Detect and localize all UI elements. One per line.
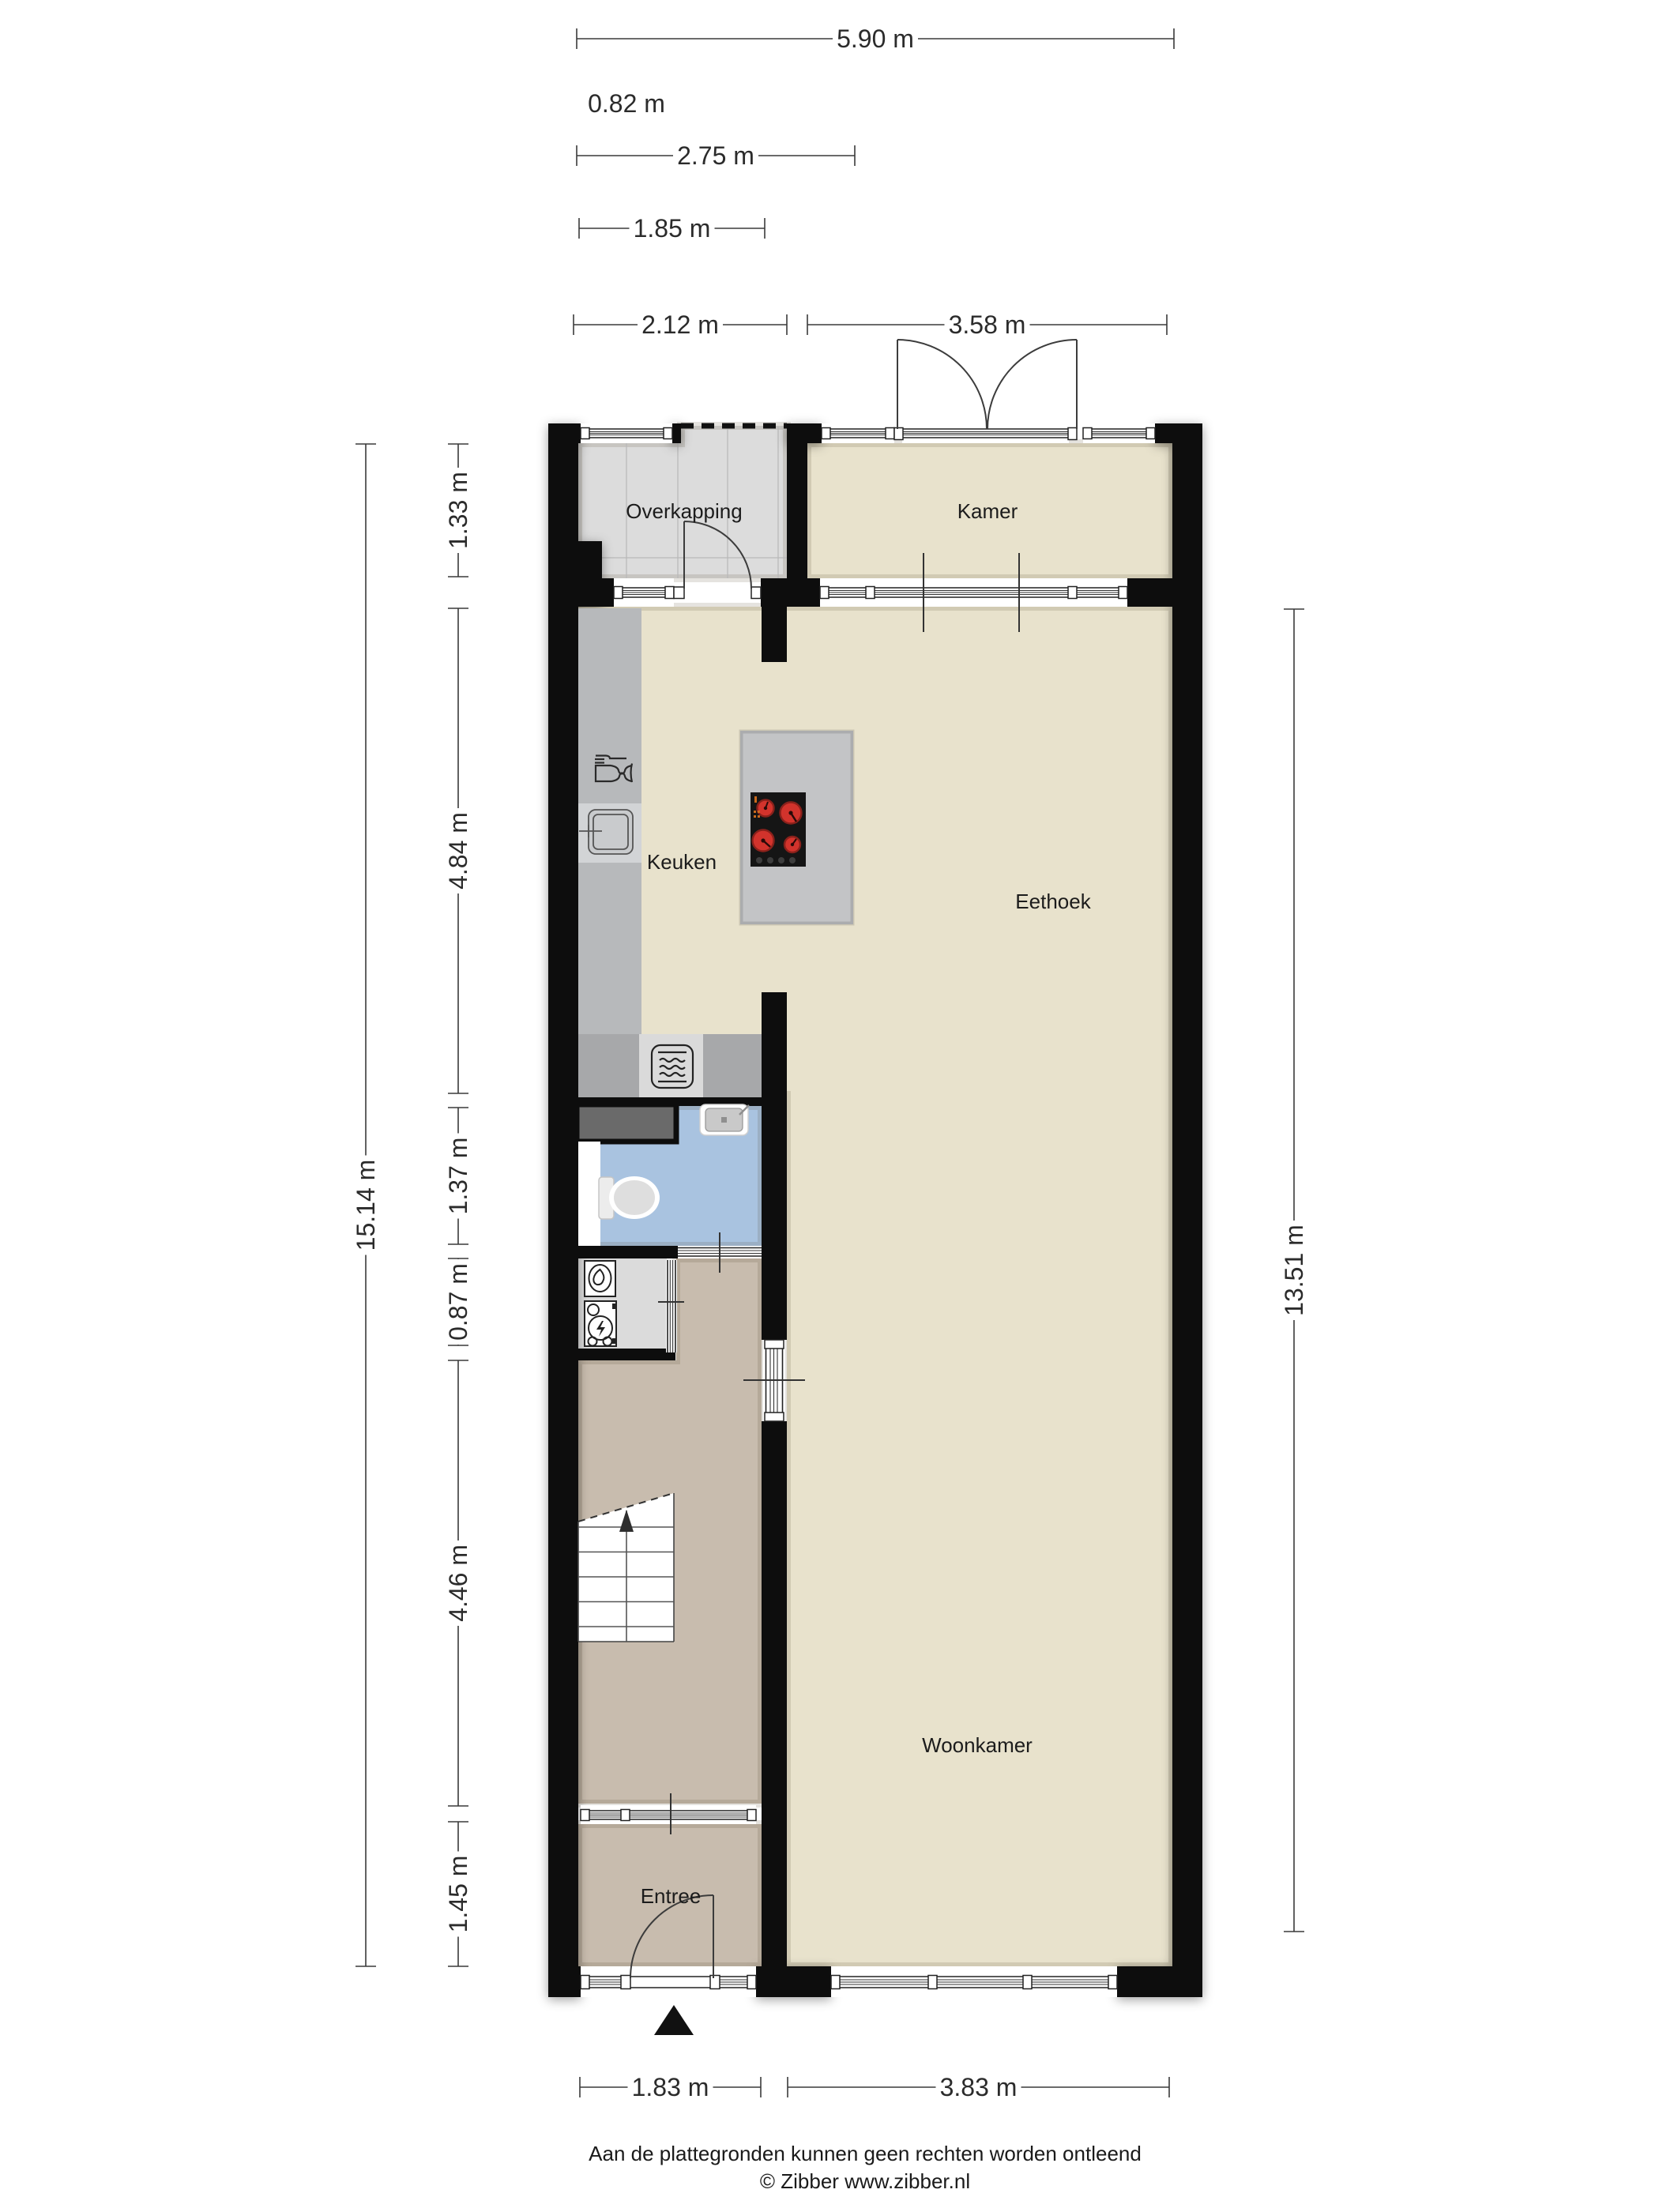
svg-text:1.37 m: 1.37 m: [444, 1138, 472, 1215]
svg-text:1.33 m: 1.33 m: [444, 472, 472, 549]
svg-text:3.58 m: 3.58 m: [949, 310, 1026, 339]
svg-text:Kamer: Kamer: [957, 499, 1018, 523]
svg-text:Eethoek: Eethoek: [1015, 890, 1091, 913]
svg-text:Aan de plattegronden kunnen ge: Aan de plattegronden kunnen geen rechten…: [589, 2142, 1142, 2165]
svg-text:1.85 m: 1.85 m: [634, 214, 711, 243]
svg-text:2.75 m: 2.75 m: [677, 141, 754, 170]
svg-text:5.90 m: 5.90 m: [837, 24, 914, 53]
svg-text:13.51 m: 13.51 m: [1280, 1224, 1308, 1316]
svg-text:1.45 m: 1.45 m: [444, 1856, 472, 1933]
svg-text:4.84 m: 4.84 m: [444, 812, 472, 890]
svg-text:Overkapping: Overkapping: [626, 499, 742, 523]
svg-text:0.87 m: 0.87 m: [444, 1263, 472, 1341]
svg-text:Keuken: Keuken: [647, 850, 717, 874]
svg-text:3.83 m: 3.83 m: [940, 2073, 1018, 2101]
svg-text:2.12 m: 2.12 m: [641, 310, 719, 339]
svg-text:Entree: Entree: [641, 1884, 702, 1908]
svg-text:Woonkamer: Woonkamer: [922, 1733, 1033, 1757]
svg-text:4.46 m: 4.46 m: [444, 1544, 472, 1622]
svg-text:15.14 m: 15.14 m: [352, 1160, 380, 1251]
svg-text:1.83 m: 1.83 m: [632, 2073, 709, 2101]
svg-text:© Zibber www.zibber.nl: © Zibber www.zibber.nl: [760, 2169, 970, 2193]
svg-text:0.82 m: 0.82 m: [588, 89, 665, 118]
